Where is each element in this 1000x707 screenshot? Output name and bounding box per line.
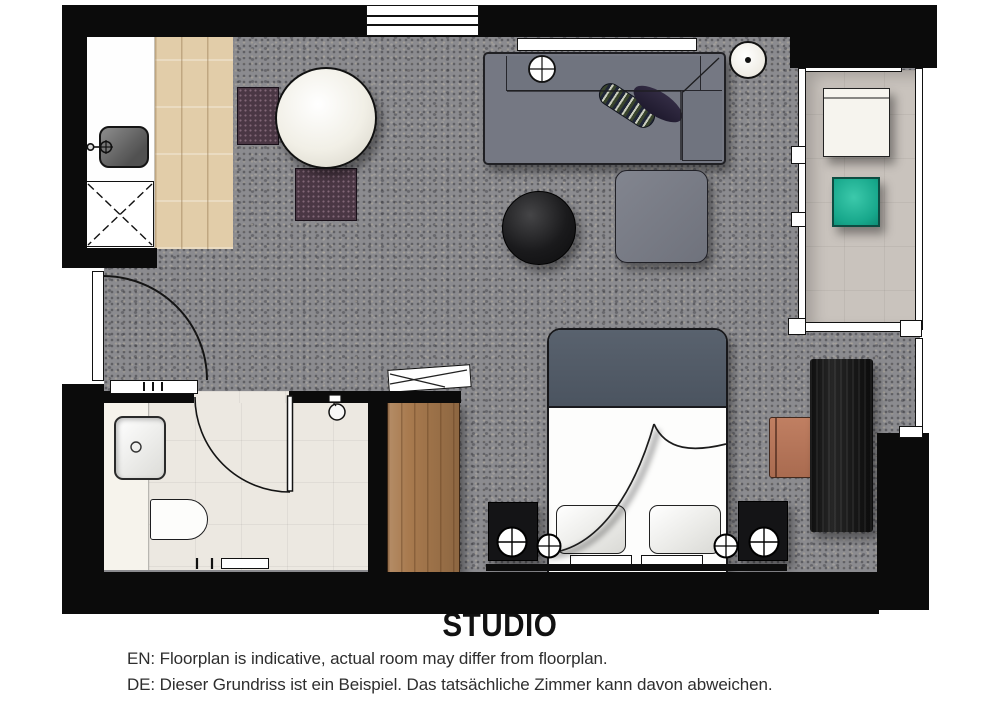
floor-lamp <box>729 41 767 79</box>
entry-console <box>110 380 198 394</box>
wardrobe <box>387 400 460 573</box>
wall-top-right <box>790 5 937 68</box>
balcony-chair <box>823 88 890 157</box>
sofa-chaise <box>682 90 722 161</box>
kitchen-sink <box>99 126 149 168</box>
balcony-chair-backrest <box>824 97 889 99</box>
dining-table <box>275 67 377 169</box>
wall-bathroom-right <box>368 394 387 572</box>
balcony-glazing-left <box>798 68 806 330</box>
window-top-mullion <box>367 24 478 26</box>
bed-pillow-left <box>556 505 626 554</box>
dining-chair-bottom <box>295 168 357 221</box>
dining-chair-left <box>237 87 279 145</box>
toilet <box>150 499 208 540</box>
washbasin <box>114 416 166 480</box>
console-shelf <box>517 38 697 51</box>
balcony-corner-post-right <box>900 320 922 337</box>
wood-floor <box>155 37 233 249</box>
note-de: DE: Dieser Grundriss ist ein Beispiel. D… <box>127 675 772 695</box>
entrance-door <box>92 271 104 381</box>
bed-pillow-right <box>649 505 721 554</box>
wall-right-column <box>877 433 929 610</box>
desk <box>810 359 873 532</box>
window-top-mullion <box>367 15 478 17</box>
nightstand-left <box>488 502 538 561</box>
coffee-table <box>502 191 576 265</box>
window-right <box>915 338 923 428</box>
sofa <box>483 52 726 165</box>
note-en: EN: Floorplan is indicative, actual room… <box>127 649 608 669</box>
balcony-corner-post-left <box>788 318 806 335</box>
balcony-door-jamb-bottom <box>791 212 806 227</box>
headboard-line <box>486 564 787 571</box>
floorplan: STUDIO EN: Floorplan is indicative, actu… <box>0 0 1000 707</box>
bed-duvet <box>549 330 726 408</box>
balcony-glazing-right <box>915 68 923 330</box>
bathroom-door-threshold <box>193 391 289 403</box>
window-right-post-bottom <box>899 426 923 438</box>
bathroom-shelf <box>221 558 269 569</box>
ottoman <box>615 170 708 263</box>
balcony-glazing-bottom <box>804 322 906 332</box>
balcony-door-jamb-top <box>791 146 806 164</box>
kitchen-appliance <box>86 181 154 247</box>
nightstand-right <box>738 501 788 561</box>
wall-kitchen-bottom <box>68 248 157 268</box>
wall-left-upper <box>62 5 87 270</box>
desk-chair-seam <box>775 418 777 477</box>
window-top <box>366 5 479 36</box>
desk-chair <box>769 417 814 478</box>
balcony-table <box>832 177 880 227</box>
wall-bottom <box>62 572 879 614</box>
